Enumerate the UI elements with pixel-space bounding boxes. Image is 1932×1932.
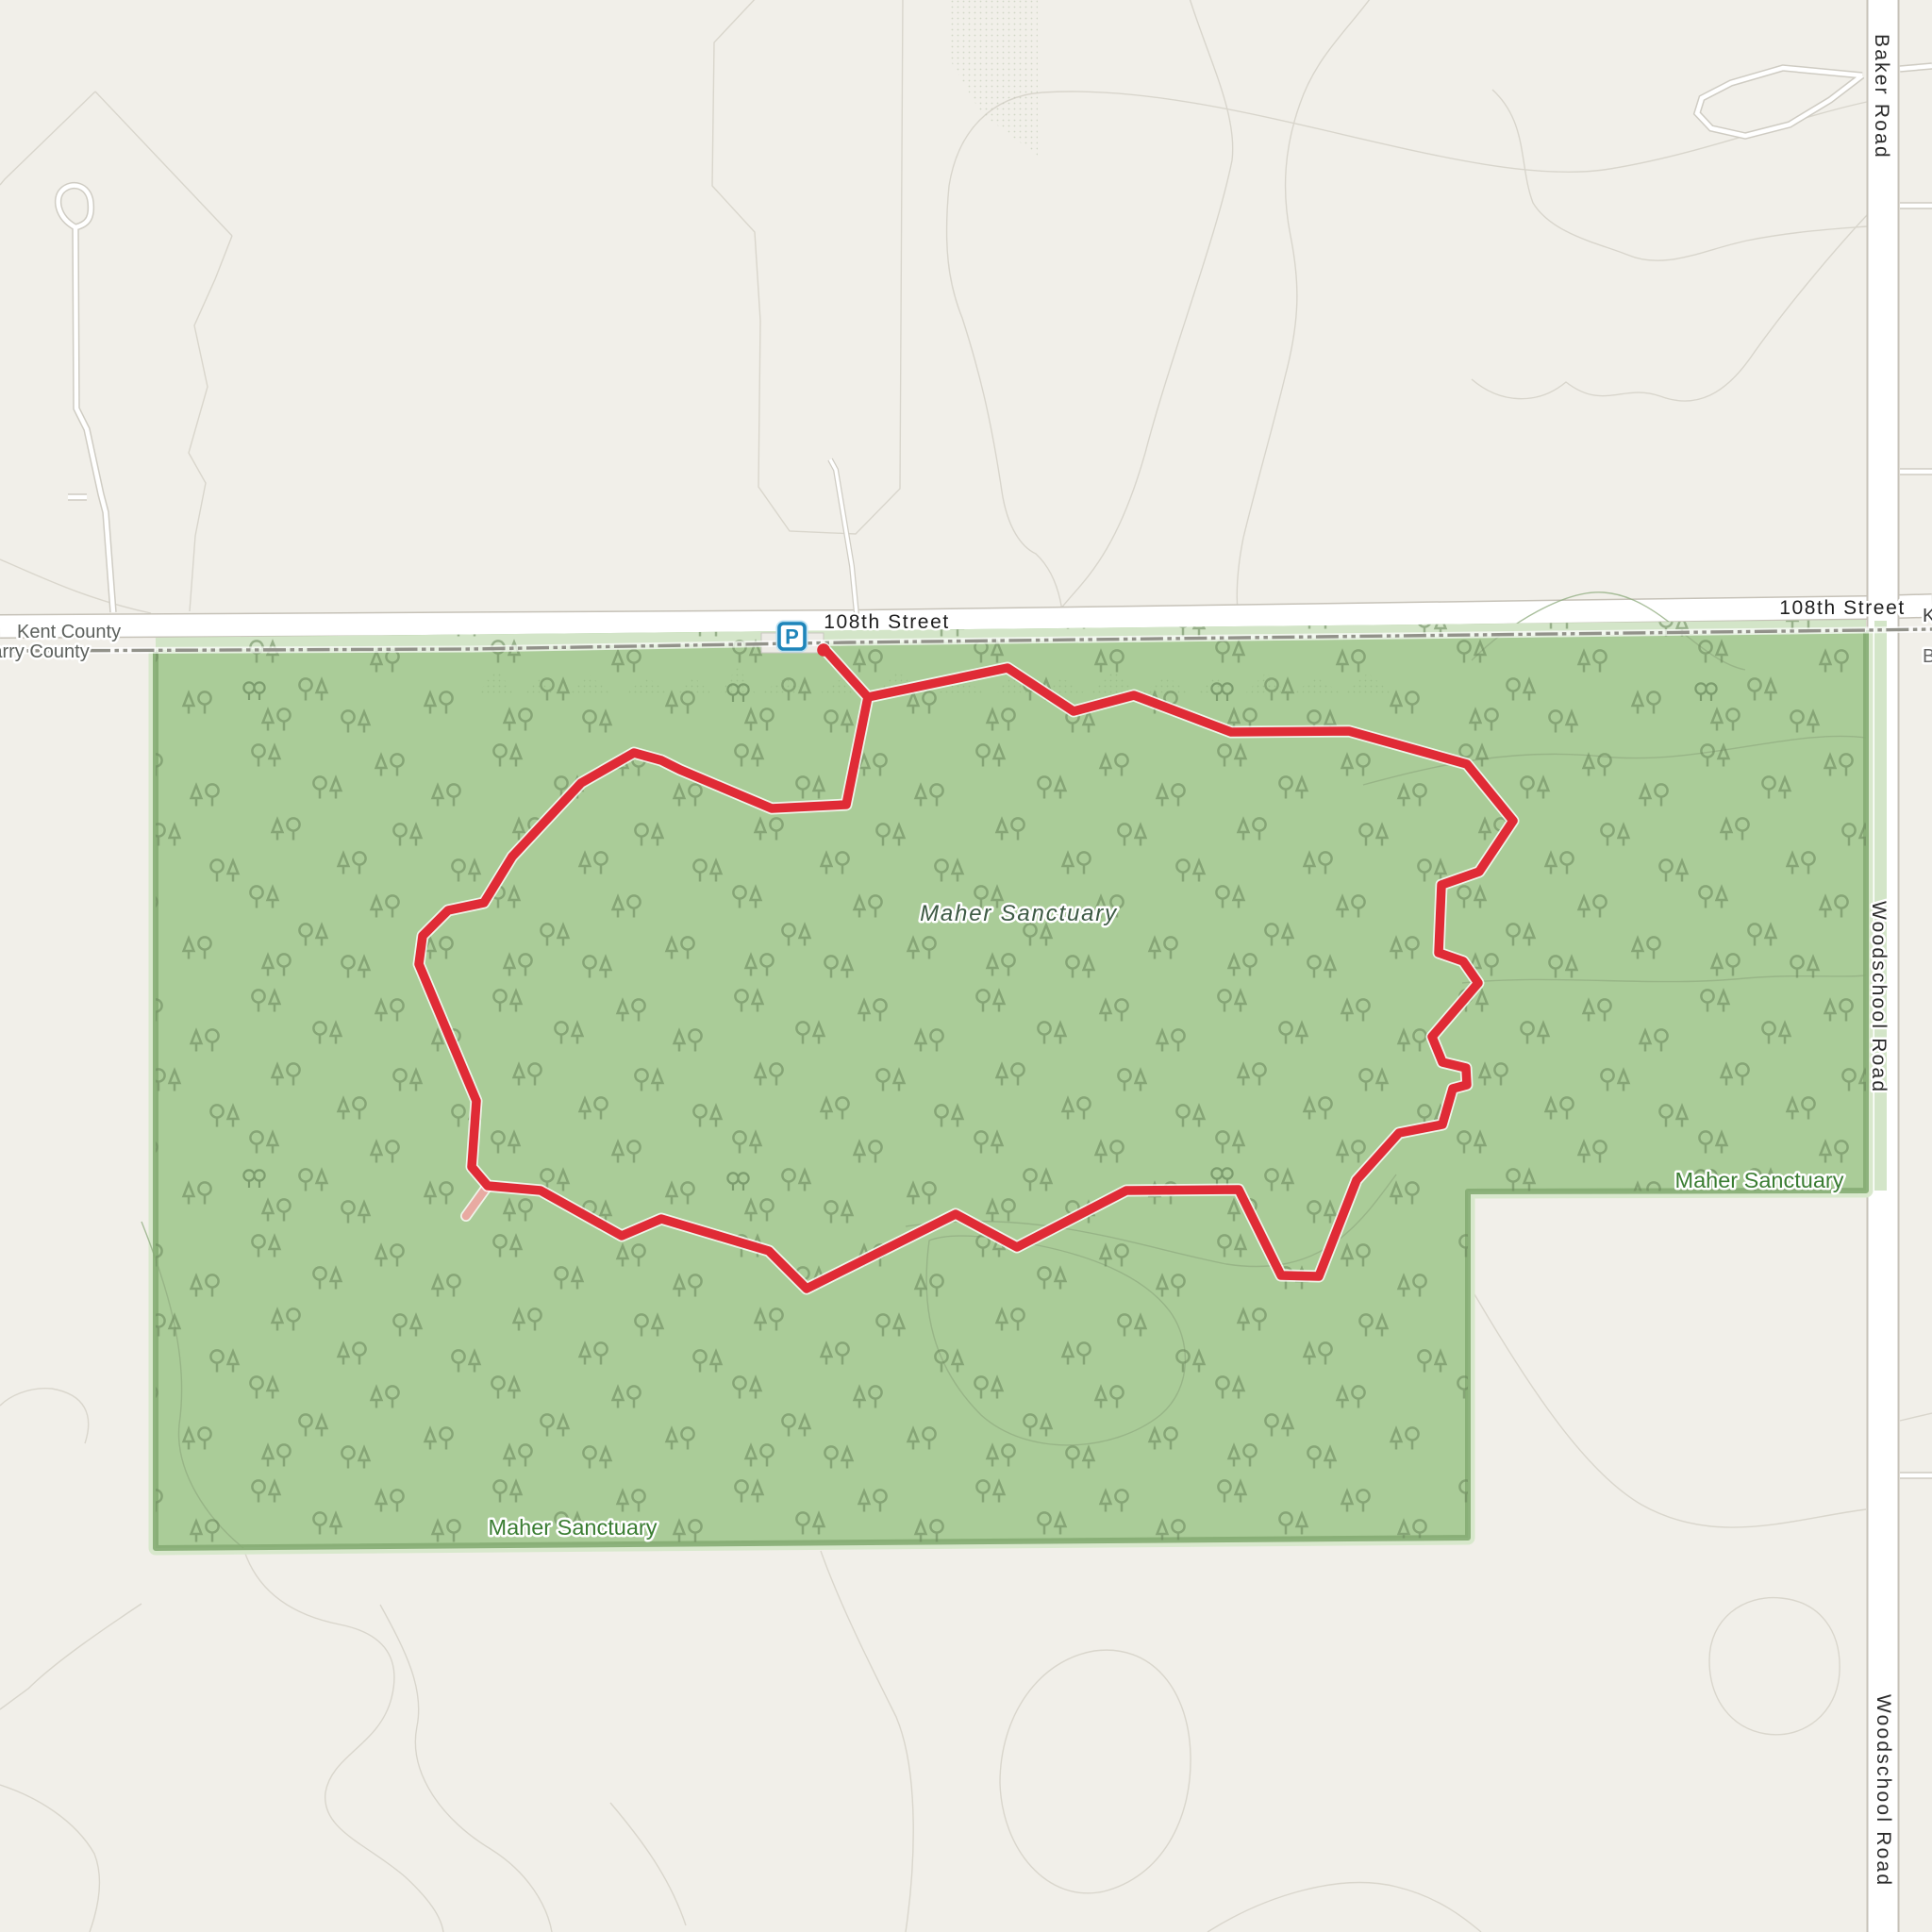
- svg-text:Woodschool Road: Woodschool Road: [1873, 1694, 1894, 1887]
- svg-text:Baker Road: Baker Road: [1871, 34, 1892, 159]
- svg-text:Maher Sanctuary: Maher Sanctuary: [920, 901, 1118, 926]
- svg-text:108th Street: 108th Street: [1779, 597, 1906, 619]
- svg-text:Maher Sanctuary: Maher Sanctuary: [489, 1515, 658, 1540]
- svg-text:P: P: [785, 625, 799, 649]
- svg-text:Kent County: Kent County: [17, 622, 121, 642]
- svg-text:Maher Sanctuary: Maher Sanctuary: [1675, 1168, 1844, 1192]
- svg-text:K: K: [1923, 606, 1932, 626]
- svg-text:Barry County: Barry County: [0, 641, 90, 662]
- svg-text:Woodschool Road: Woodschool Road: [1868, 901, 1890, 1093]
- svg-text:B: B: [1923, 646, 1932, 667]
- svg-text:108th Street: 108th Street: [824, 611, 950, 633]
